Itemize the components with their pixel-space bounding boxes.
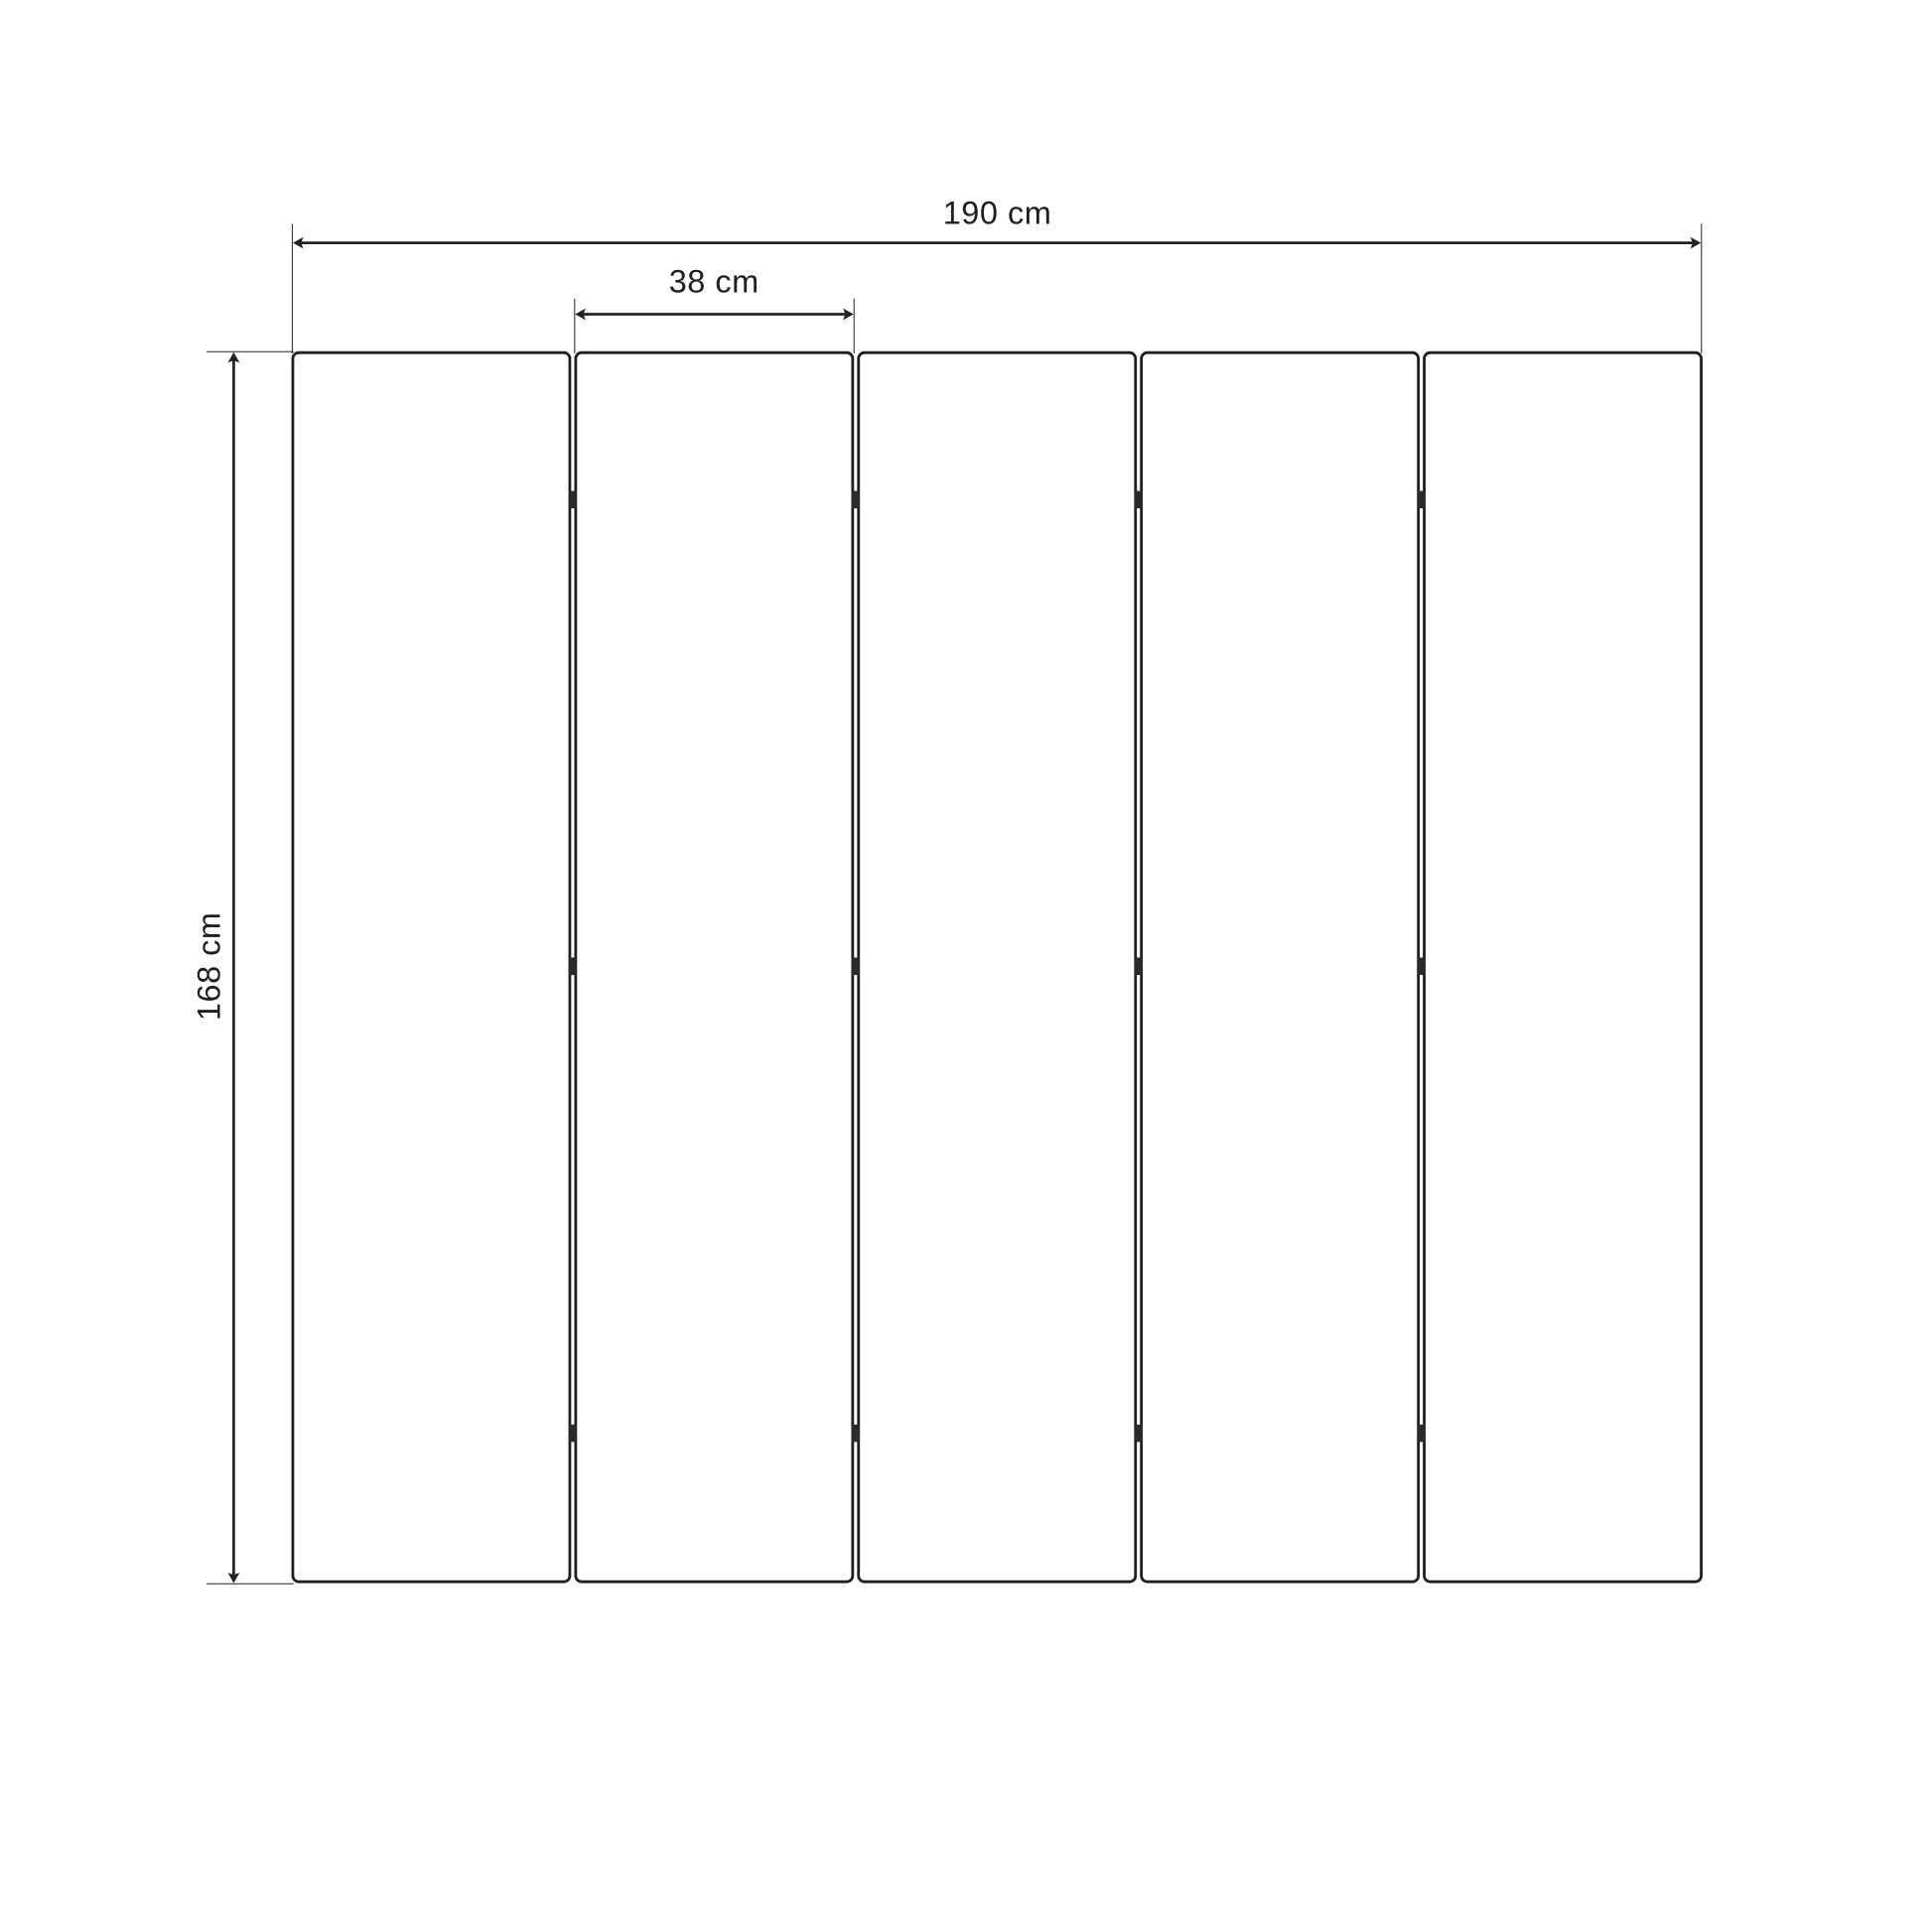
svg-text:38 cm: 38 cm	[669, 264, 759, 300]
svg-text:190 cm: 190 cm	[943, 196, 1052, 231]
svg-text:168 cm: 168 cm	[192, 912, 227, 1022]
